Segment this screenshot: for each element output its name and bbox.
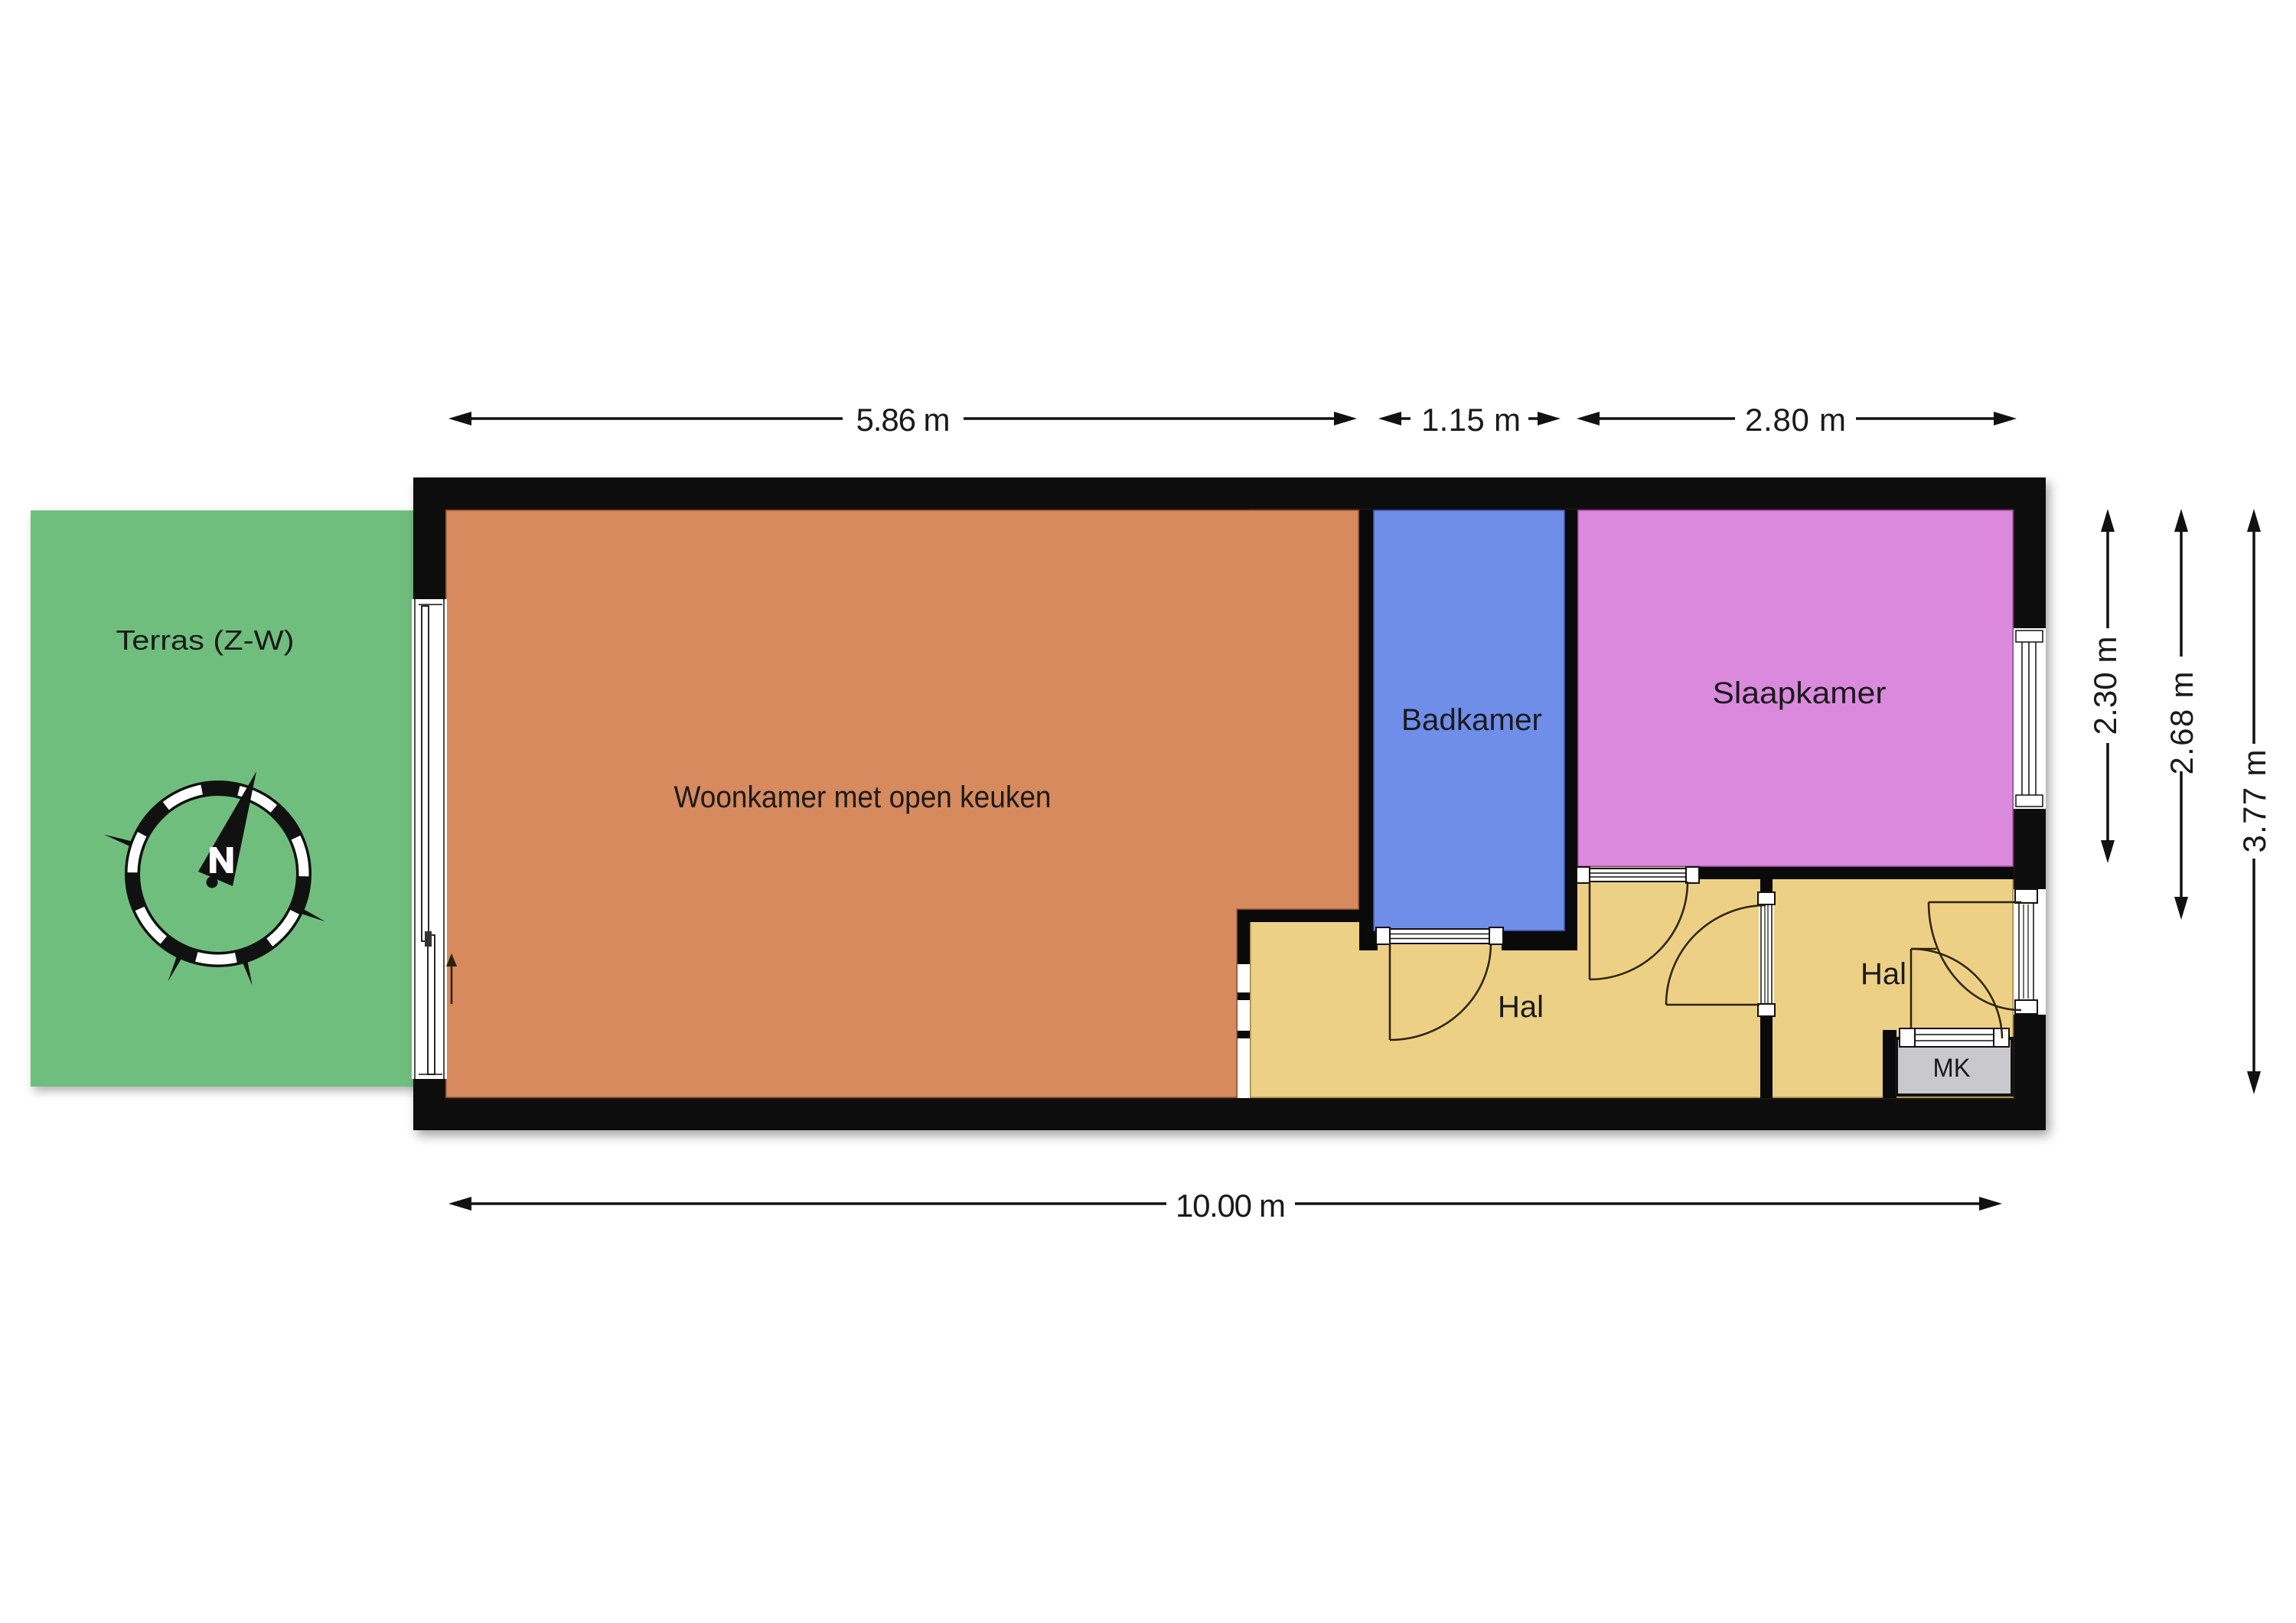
svg-text:Slaapkamer: Slaapkamer bbox=[1713, 676, 1887, 710]
svg-text:2.30 m: 2.30 m bbox=[2087, 637, 2123, 735]
svg-text:1.15 m: 1.15 m bbox=[1421, 402, 1521, 438]
svg-text:5.86 m: 5.86 m bbox=[856, 402, 951, 438]
svg-text:3.77 m: 3.77 m bbox=[2236, 750, 2272, 853]
svg-text:2.80 m: 2.80 m bbox=[1745, 402, 1846, 438]
svg-text:Badkamer: Badkamer bbox=[1401, 703, 1542, 737]
svg-text:Hal: Hal bbox=[1861, 957, 1906, 991]
svg-text:Woonkamer met open keuken: Woonkamer met open keuken bbox=[674, 781, 1052, 814]
svg-text:MK: MK bbox=[1933, 1054, 1971, 1083]
svg-text:2.68 m: 2.68 m bbox=[2164, 672, 2200, 775]
svg-text:10.00 m: 10.00 m bbox=[1176, 1188, 1286, 1224]
svg-text:Hal: Hal bbox=[1498, 990, 1544, 1024]
svg-text:Terras (Z-W): Terras (Z-W) bbox=[116, 624, 295, 656]
